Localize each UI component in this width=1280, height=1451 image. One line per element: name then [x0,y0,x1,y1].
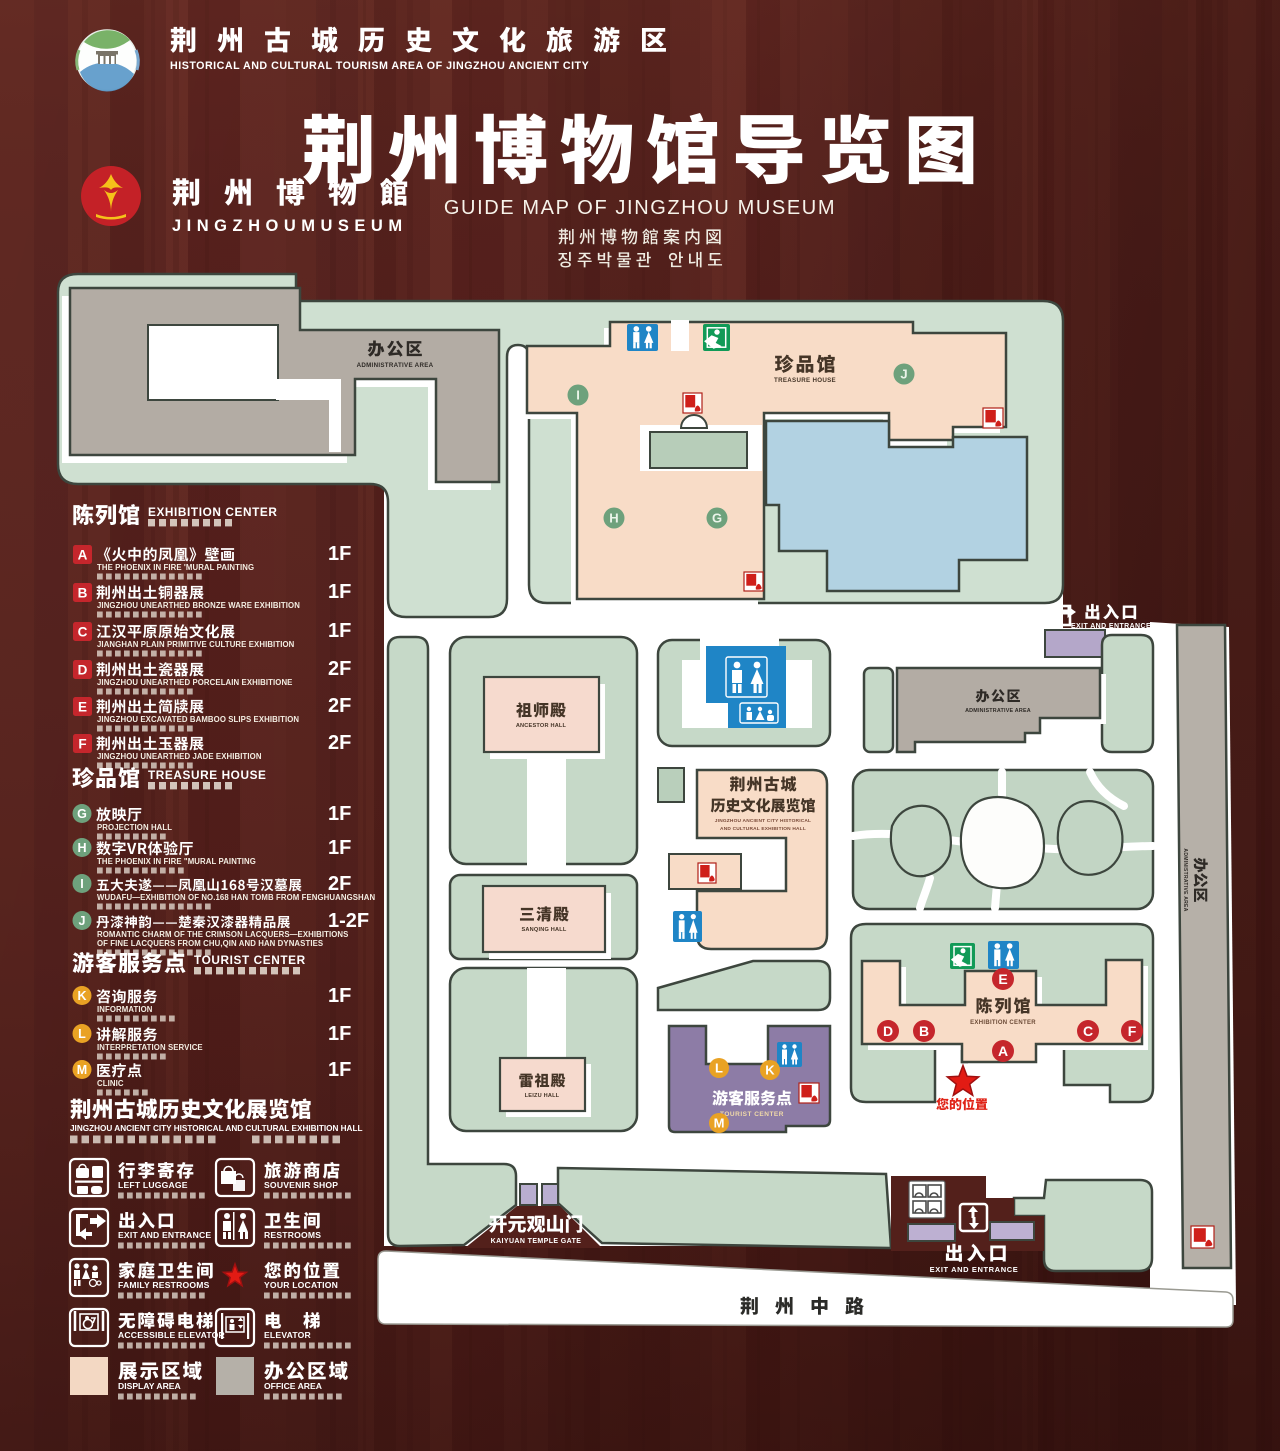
svg-text:THE PHOENIX IN FIRE 'MURAL PAI: THE PHOENIX IN FIRE 'MURAL PAINTING [97,563,254,572]
svg-text:JINGZHOU UNEARTHED BRONZE WARE: JINGZHOU UNEARTHED BRONZE WARE EXHIBITIO… [97,601,300,610]
svg-text:E: E [78,700,87,715]
svg-text:1F: 1F [328,543,351,565]
svg-text:JINGZHOU ANCIENT CITY HISTORIC: JINGZHOU ANCIENT CITY HISTORICAL [715,818,811,824]
svg-text:INFORMATION: INFORMATION [97,1005,153,1014]
svg-text:J: J [79,914,86,928]
svg-text:EXHIBITION CENTER: EXHIBITION CENTER [148,505,278,519]
svg-text:1-2F: 1-2F [328,910,369,932]
svg-text:ADMINISTRATIVE AREA: ADMINISTRATIVE AREA [357,362,434,369]
svg-text:TOURIST CENTER: TOURIST CENTER [194,953,306,967]
svg-text:TOURIST CENTER: TOURIST CENTER [720,1111,784,1118]
svg-text:EXHIBITION CENTER: EXHIBITION CENTER [970,1020,1036,1026]
svg-text:B: B [919,1023,929,1039]
svg-text:LEFT LUGGAGE: LEFT LUGGAGE [118,1180,188,1190]
svg-text:ACCESSIBLE ELEVATOR: ACCESSIBLE ELEVATOR [118,1330,226,1340]
svg-text:1F: 1F [328,803,351,825]
svg-text:OFFICE AREA: OFFICE AREA [264,1381,322,1391]
svg-text:TREASURE HOUSE: TREASURE HOUSE [148,768,267,782]
svg-text:I: I [80,877,83,891]
svg-text:1F: 1F [328,1059,351,1081]
svg-text:JINGZHOU ANCIENT CITY HISTORIC: JINGZHOU ANCIENT CITY HISTORICAL AND CUL… [70,1124,362,1133]
svg-text:J: J [900,367,907,382]
svg-text:SOUVENIR SHOP: SOUVENIR SHOP [264,1180,338,1190]
svg-text:ANCESTOR HALL: ANCESTOR HALL [516,723,567,729]
svg-text:JIANGHAN PLAIN PRIMITIVE CULTU: JIANGHAN PLAIN PRIMITIVE CULTURE EXHIBIT… [97,640,295,649]
svg-text:2F: 2F [328,695,351,717]
svg-text:M: M [714,1116,725,1131]
svg-text:JINGZHOUMUSEUM: JINGZHOUMUSEUM [172,217,408,235]
svg-text:ELEVATOR: ELEVATOR [264,1330,312,1340]
svg-text:JINGZHOU UNEARTHED PORCELAIN E: JINGZHOU UNEARTHED PORCELAIN EXHIBITIONE [97,678,292,687]
svg-text:L: L [78,1027,86,1041]
svg-text:F: F [78,737,86,752]
svg-text:TREASURE HOUSE: TREASURE HOUSE [774,377,836,384]
svg-text:A: A [78,548,88,563]
svg-text:AND CULTURAL EXHIBITION HALL: AND CULTURAL EXHIBITION HALL [720,826,806,832]
svg-text:1F: 1F [328,620,351,642]
svg-text:SANQING HALL: SANQING HALL [522,927,567,933]
svg-text:JINGZHOU UNEARTHED JADE EXHIBI: JINGZHOU UNEARTHED JADE EXHIBITION [97,752,262,761]
svg-text:2F: 2F [328,658,351,680]
svg-text:I: I [576,388,580,403]
svg-text:C: C [78,625,88,640]
svg-text:G: G [712,511,722,526]
svg-text:OF FINE LACQUERS FROM CHU,QIN: OF FINE LACQUERS FROM CHU,QIN AND HAN DY… [97,939,323,948]
svg-text:C: C [1083,1023,1093,1039]
svg-text:M: M [77,1063,87,1077]
svg-text:JINGZHOU EXCAVATED BAMBOO SLIP: JINGZHOU EXCAVATED BAMBOO SLIPS EXHIBITI… [97,715,299,724]
svg-text:D: D [883,1023,893,1039]
svg-text:K: K [765,1063,775,1078]
svg-text:INTERPRETATION SERVICE: INTERPRETATION SERVICE [97,1043,203,1052]
svg-text:K: K [77,989,86,1003]
svg-text:1F: 1F [328,1023,351,1045]
svg-text:ADMINISTRATIVE AREA: ADMINISTRATIVE AREA [1182,848,1188,911]
svg-text:L: L [715,1061,723,1076]
svg-text:ROMANTIC CHARM OF THE CRIMSON: ROMANTIC CHARM OF THE CRIMSON LACQUERS—E… [97,930,348,939]
svg-text:E: E [998,971,1007,987]
svg-text:B: B [78,586,88,601]
svg-text:ADMINISTRATIVE AREA: ADMINISTRATIVE AREA [965,708,1031,714]
svg-text:YOUR LOCATION: YOUR LOCATION [264,1280,338,1290]
svg-text:CLINIC: CLINIC [97,1079,124,1088]
svg-text:EXIT AND ENTRANCE: EXIT AND ENTRANCE [930,1265,1019,1274]
svg-text:RESTROOMS: RESTROOMS [264,1230,321,1240]
svg-text:THE PHOENIX IN FIRE "MURAL PAI: THE PHOENIX IN FIRE "MURAL PAINTING [97,857,256,866]
svg-text:PROJECTION HALL: PROJECTION HALL [97,823,172,832]
svg-text:1F: 1F [328,837,351,859]
svg-text:DISPLAY AREA: DISPLAY AREA [118,1381,181,1391]
svg-text:G: G [77,807,87,821]
svg-text:2F: 2F [328,873,351,895]
svg-text:A: A [998,1043,1008,1059]
svg-text:2F: 2F [328,732,351,754]
svg-text:FAMILY RESTROOMS: FAMILY RESTROOMS [118,1280,210,1290]
svg-text:H: H [77,841,86,855]
svg-text:D: D [78,663,88,678]
svg-text:1F: 1F [328,581,351,603]
svg-text:EXIT AND ENTRANCE: EXIT AND ENTRANCE [1071,623,1151,630]
svg-text:GUIDE MAP OF JINGZHOU MUSEUM: GUIDE MAP OF JINGZHOU MUSEUM [444,197,836,219]
svg-text:KAIYUAN TEMPLE GATE: KAIYUAN TEMPLE GATE [491,1238,582,1245]
svg-text:HISTORICAL AND CULTURAL TOURIS: HISTORICAL AND CULTURAL TOURISM AREA OF … [170,60,589,72]
svg-text:1F: 1F [328,985,351,1007]
svg-text:EXIT AND ENTRANCE: EXIT AND ENTRANCE [118,1230,211,1240]
svg-text:H: H [609,511,618,526]
svg-text:LEIZU HALL: LEIZU HALL [525,1093,560,1099]
svg-text:F: F [1128,1023,1137,1039]
